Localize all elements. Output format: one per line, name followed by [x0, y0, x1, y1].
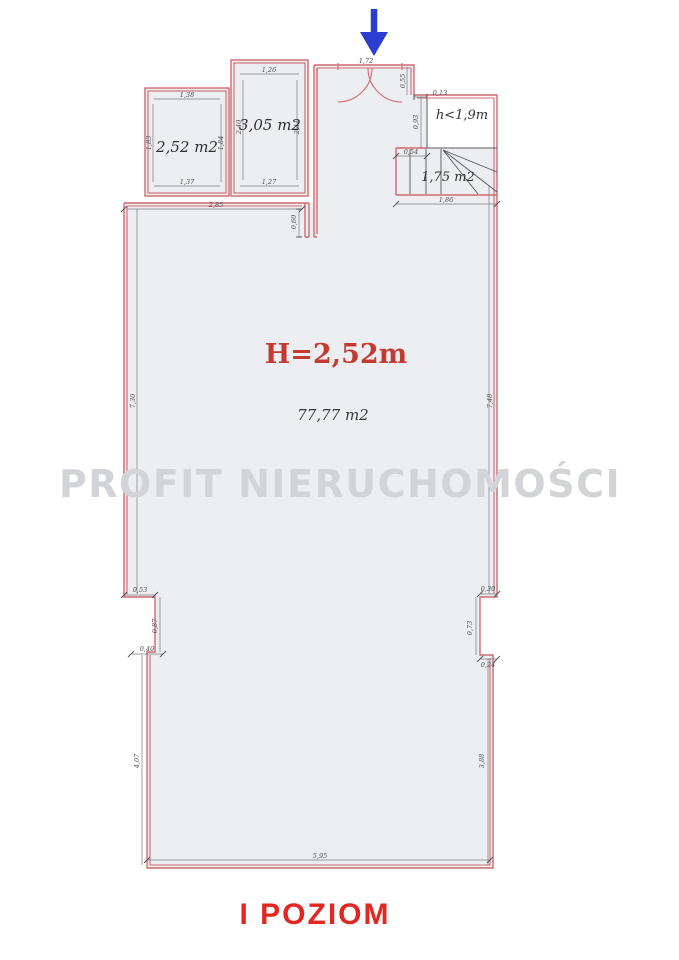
dim-room1-top-label: 1,38	[180, 91, 194, 99]
room-small-left-area-label: 2,52 m2	[155, 138, 218, 156]
stairs-area-label: 1,75 m2	[421, 170, 475, 185]
dim-main-right-upper-label: 7,48	[486, 394, 494, 408]
dim-main-left-upper-label: 7,30	[129, 394, 137, 408]
dim-left-lower-label: 4,07	[133, 753, 141, 769]
floor-plan-page: 1,72 0,55 0,13 0,93 0,54 1,86 1,38 1,37 …	[0, 0, 679, 960]
dim-room1-right-label: 1,84	[217, 136, 225, 150]
dim-entry-door-label: 1,72	[359, 57, 373, 65]
entrance-arrow-head	[360, 32, 388, 56]
dim-main-bottom-label: 5,95	[313, 852, 327, 860]
dim-stairs-bottom-label: 1,86	[439, 196, 453, 204]
dim-room1-left-label: 1,83	[145, 136, 153, 150]
dim-left-step-width-label: 0,53	[133, 586, 147, 594]
dim-attic-step-label: 0,13	[433, 89, 447, 97]
dim-right-step-height-label: 0,73	[466, 621, 474, 635]
dim-left-step-width2-label: 0,40	[140, 645, 154, 653]
dim-room2-bottom-label: 1,27	[262, 178, 277, 186]
dim-room1-bottom-label: 1,37	[180, 178, 195, 186]
dim-right-step-width-label: 0,30	[481, 585, 495, 593]
dim-attic-side-label: 0,93	[412, 115, 420, 129]
dim-main-stub-label: 0,60	[290, 215, 298, 229]
dim-room2-top-label: 1,26	[262, 66, 276, 74]
low-height-note-label: h<1,9m	[436, 108, 488, 123]
dim-left-step-height-label: 0,87	[151, 618, 159, 633]
dim-entry-right-label: 0,55	[399, 74, 407, 88]
ceiling-height-label: H=2,52m	[265, 339, 407, 370]
dim-main-top-label: 2,85	[208, 201, 223, 209]
room-small-mid-area-label: 3,05 m2	[239, 116, 301, 134]
watermark-text: PROFIT NIERUCHOMOŚCI	[59, 462, 621, 506]
floor-plan-drawing: 1,72 0,55 0,13 0,93 0,54 1,86 1,38 1,37 …	[0, 0, 679, 960]
floor-title: I POZIOM	[240, 898, 391, 931]
dim-attic-offset-label: 0,54	[404, 148, 418, 156]
main-area-label: 77,77 m2	[297, 406, 368, 424]
dim-right-lower-label: 3,88	[478, 754, 486, 768]
dim-right-step-width2-label: 0,24	[481, 661, 495, 669]
entrance-arrow-icon	[360, 9, 388, 56]
